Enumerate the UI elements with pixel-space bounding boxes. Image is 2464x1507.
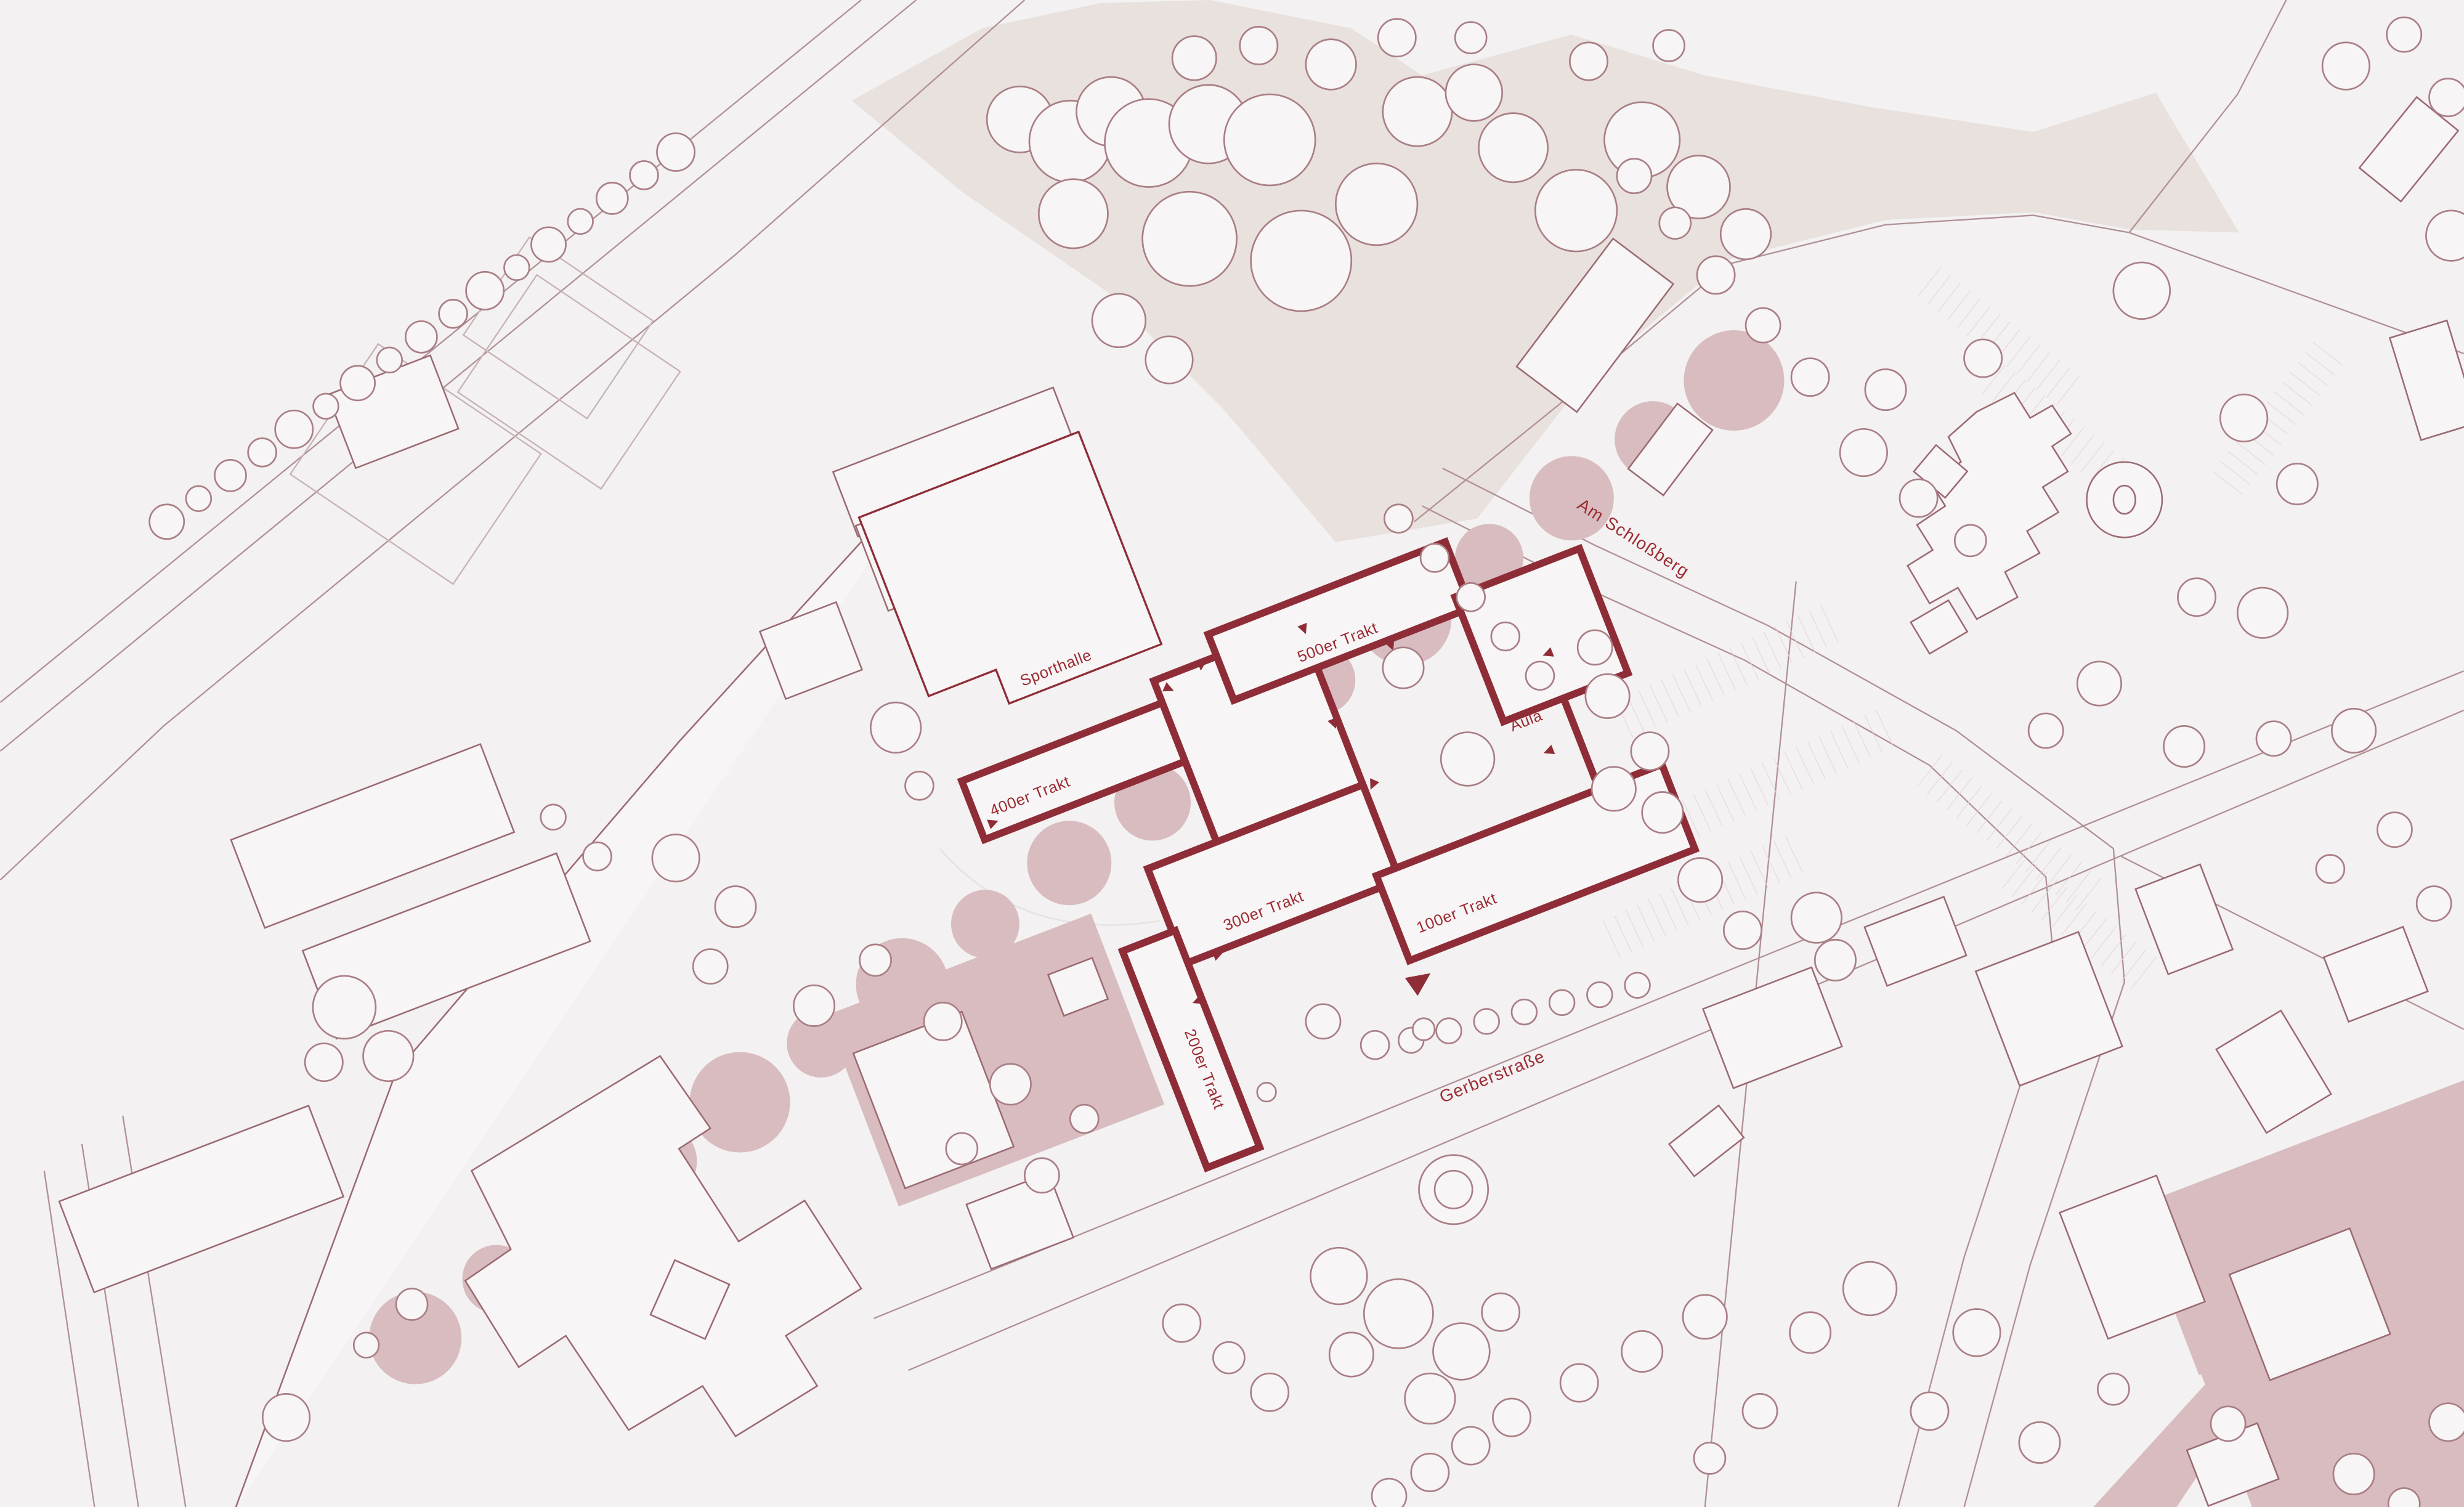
tree bbox=[2163, 726, 2204, 766]
tree bbox=[860, 944, 891, 976]
tree bbox=[1625, 973, 1650, 998]
tree bbox=[1213, 1342, 1244, 1373]
tree bbox=[1592, 767, 1635, 811]
tree bbox=[1405, 1373, 1456, 1424]
tree bbox=[531, 227, 565, 262]
tree bbox=[1383, 648, 1424, 688]
tree bbox=[439, 299, 468, 328]
tree bbox=[2019, 1422, 2060, 1463]
tree bbox=[1493, 1399, 1530, 1436]
tree bbox=[1865, 369, 1906, 410]
tree bbox=[1361, 1031, 1389, 1059]
extrusion-shadow bbox=[692, 1054, 788, 1150]
tree bbox=[1240, 26, 1278, 64]
tree bbox=[1372, 1479, 1406, 1507]
tree bbox=[1724, 911, 1761, 949]
tree bbox=[1791, 893, 1842, 943]
tree bbox=[1653, 30, 1685, 61]
tree bbox=[1694, 1442, 1725, 1474]
tree bbox=[1478, 113, 1547, 182]
tree bbox=[2113, 262, 2170, 319]
tree bbox=[1683, 1295, 1727, 1339]
tree bbox=[275, 410, 313, 448]
tree bbox=[1024, 1158, 1059, 1193]
tree bbox=[1843, 1262, 1897, 1315]
tree bbox=[1446, 65, 1502, 121]
tree bbox=[541, 805, 566, 830]
tree bbox=[1378, 19, 1416, 57]
tree bbox=[1224, 94, 1315, 185]
tree bbox=[1251, 211, 1352, 311]
tree bbox=[693, 949, 727, 984]
tree bbox=[652, 834, 700, 882]
tree bbox=[2256, 721, 2291, 756]
tree bbox=[1491, 622, 1520, 651]
tree bbox=[2322, 43, 2370, 90]
tree bbox=[354, 1333, 379, 1358]
tree bbox=[1697, 256, 1735, 294]
extrusion-shadow bbox=[953, 892, 1017, 956]
tree bbox=[1535, 169, 1617, 251]
tree bbox=[1587, 982, 1612, 1007]
tree bbox=[1364, 1279, 1433, 1348]
tree bbox=[1251, 1373, 1289, 1411]
tree bbox=[1039, 179, 1108, 248]
tree bbox=[2430, 1403, 2464, 1441]
tree bbox=[363, 1031, 414, 1081]
tree bbox=[1622, 1331, 1663, 1371]
tree bbox=[1146, 336, 1193, 384]
tree bbox=[793, 985, 834, 1026]
tree bbox=[1163, 1304, 1201, 1342]
extrusion-shadow bbox=[1686, 332, 1782, 428]
tree bbox=[1789, 1312, 1830, 1353]
tree bbox=[1660, 208, 1691, 239]
tree bbox=[2277, 463, 2317, 504]
tree bbox=[1617, 159, 1651, 193]
tree bbox=[313, 976, 376, 1039]
tree bbox=[2220, 394, 2267, 442]
tree bbox=[1143, 192, 1237, 286]
tree bbox=[1743, 1394, 1777, 1428]
extrusion-shadow bbox=[1029, 823, 1109, 903]
tree bbox=[1329, 1333, 1373, 1376]
tree bbox=[1720, 209, 1771, 259]
tree bbox=[2430, 79, 2464, 116]
tree bbox=[1840, 429, 1887, 476]
tree bbox=[1306, 1004, 1340, 1039]
tree bbox=[1092, 294, 1146, 347]
tree bbox=[1412, 1018, 1435, 1041]
tree bbox=[596, 182, 628, 214]
tree bbox=[2377, 813, 2412, 847]
tree bbox=[341, 366, 375, 400]
tree bbox=[1512, 999, 1537, 1025]
tree bbox=[262, 1394, 310, 1441]
tree bbox=[1383, 77, 1452, 146]
tree bbox=[1526, 662, 1554, 690]
tree bbox=[2211, 1407, 2245, 1441]
tree bbox=[466, 272, 504, 309]
tree bbox=[405, 321, 437, 352]
tree bbox=[1452, 1427, 1489, 1464]
tree bbox=[2332, 709, 2375, 752]
tree bbox=[215, 460, 246, 491]
tree bbox=[1306, 39, 1356, 90]
tree bbox=[2316, 855, 2344, 883]
tree bbox=[1437, 1018, 1462, 1044]
tree bbox=[1441, 733, 1494, 786]
tree bbox=[186, 486, 211, 511]
tree bbox=[150, 505, 184, 539]
tree bbox=[1411, 1453, 1449, 1491]
tree bbox=[1311, 1248, 1368, 1304]
tree bbox=[314, 394, 339, 419]
tree bbox=[1560, 1364, 1598, 1402]
tree-inner-ring bbox=[1435, 1171, 1472, 1208]
tree bbox=[2028, 713, 2063, 748]
tree bbox=[1815, 940, 1855, 980]
tree bbox=[1791, 359, 1829, 396]
tree bbox=[2237, 588, 2288, 638]
tree bbox=[946, 1133, 978, 1164]
tree bbox=[1457, 583, 1485, 611]
tree bbox=[1955, 525, 1986, 556]
tree bbox=[1482, 1293, 1520, 1331]
tree bbox=[1474, 1009, 1499, 1034]
tree bbox=[377, 347, 402, 373]
tree bbox=[870, 702, 921, 753]
tree bbox=[305, 1044, 342, 1081]
tree bbox=[990, 1064, 1031, 1105]
tree bbox=[1549, 990, 1574, 1015]
tree bbox=[1900, 479, 1937, 517]
site-plan: Sporthalle 400er Trakt 500er Trakt Aula … bbox=[0, 0, 2464, 1507]
tree bbox=[1586, 674, 1629, 718]
tree bbox=[1678, 858, 1722, 902]
tree bbox=[1070, 1105, 1098, 1133]
tree bbox=[2417, 887, 2451, 921]
tree bbox=[583, 842, 612, 871]
tree bbox=[1335, 163, 1417, 245]
tree bbox=[1172, 36, 1216, 80]
tree bbox=[504, 255, 529, 280]
tree bbox=[1455, 22, 1486, 54]
tree bbox=[568, 209, 593, 234]
tree bbox=[1953, 1309, 2001, 1357]
tree bbox=[1911, 1392, 1948, 1430]
tree bbox=[924, 1002, 962, 1040]
tree bbox=[1642, 792, 1683, 832]
tree bbox=[630, 161, 658, 189]
tree bbox=[2077, 662, 2121, 705]
tree bbox=[2097, 1373, 2129, 1405]
tree bbox=[715, 887, 756, 927]
tree bbox=[2387, 17, 2421, 52]
tree bbox=[1257, 1083, 1276, 1102]
plaza-center bbox=[2113, 485, 2136, 514]
tree bbox=[657, 133, 694, 171]
tree bbox=[1578, 630, 1612, 665]
tree bbox=[1631, 733, 1669, 770]
tree bbox=[2333, 1453, 2374, 1494]
tree bbox=[1433, 1323, 1489, 1380]
tree bbox=[1420, 543, 1449, 572]
tree bbox=[1746, 308, 1780, 343]
tree bbox=[396, 1288, 428, 1320]
tree bbox=[905, 771, 933, 800]
tree bbox=[248, 438, 277, 466]
tree bbox=[1570, 43, 1607, 80]
tree bbox=[1384, 505, 1412, 533]
tree bbox=[2178, 579, 2215, 616]
tree bbox=[1964, 339, 2002, 377]
